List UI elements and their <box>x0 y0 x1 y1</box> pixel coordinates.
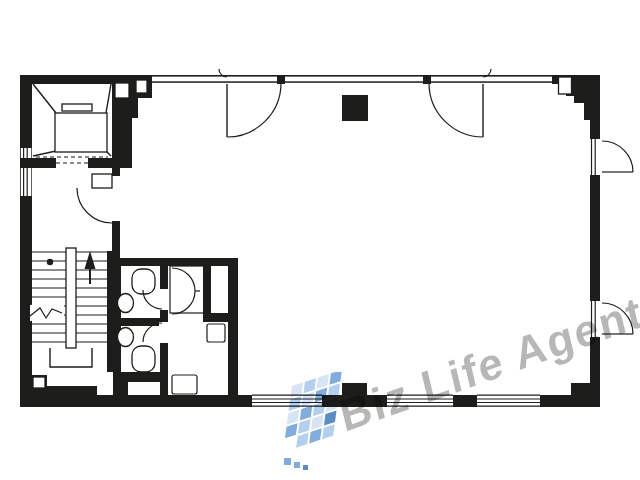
wash-basin-lower <box>118 328 134 347</box>
corner-notch <box>33 377 45 388</box>
under-wc-wall <box>128 372 168 382</box>
utility-fixture <box>172 375 197 394</box>
bottom-corner-bump <box>571 383 597 397</box>
toilet-lower <box>132 346 155 372</box>
elevator <box>20 75 152 168</box>
window <box>477 394 540 407</box>
pier-notch <box>115 83 129 98</box>
door-swing-arc <box>429 83 483 137</box>
stair-stringer <box>66 248 76 348</box>
shaft-bottom-stub <box>88 158 132 168</box>
door-leaf <box>92 174 112 188</box>
door-swing-arc <box>602 141 633 172</box>
shaft-pier-step <box>112 98 138 118</box>
water-heater <box>207 324 225 342</box>
hall-door <box>77 168 120 251</box>
staircase <box>30 248 107 367</box>
pier-notch <box>136 80 147 93</box>
landing-outline <box>50 348 92 367</box>
left-window <box>21 148 32 196</box>
utility-wall <box>203 313 238 322</box>
wc-block <box>113 258 238 397</box>
shaft-bottom-stub <box>20 158 56 168</box>
wc-right-wall <box>228 258 238 397</box>
column-pillar <box>342 95 368 121</box>
door-jamb-block <box>277 75 285 84</box>
door-swing-arc <box>227 83 281 137</box>
top-window-band <box>132 75 598 84</box>
elevator-car <box>55 113 107 152</box>
elevator-car-symbol <box>33 84 111 163</box>
top-door-right <box>429 69 491 137</box>
pipe-shaft-notch <box>559 77 572 94</box>
wash-basin-upper <box>118 294 134 313</box>
wc-door-opening <box>159 322 169 343</box>
logo-trailing-tiles <box>284 458 308 470</box>
newel-dot <box>47 259 53 265</box>
shower-unit <box>170 266 205 314</box>
elevator-door <box>62 104 92 111</box>
wc-top-wall <box>113 258 238 266</box>
wc-door-opening <box>159 289 169 310</box>
partition-wall <box>203 266 211 313</box>
bottom-wall-step <box>47 386 97 397</box>
door-swing-arc <box>77 188 112 223</box>
top-door-left <box>219 69 281 137</box>
right-door-upper <box>588 139 633 175</box>
floor-plan-image: Biz Life Agent <box>0 0 640 480</box>
interior-wall-foot <box>113 372 128 407</box>
door-jamb-block <box>423 75 431 84</box>
left-wall <box>20 75 32 407</box>
logo-tiles <box>283 372 342 452</box>
